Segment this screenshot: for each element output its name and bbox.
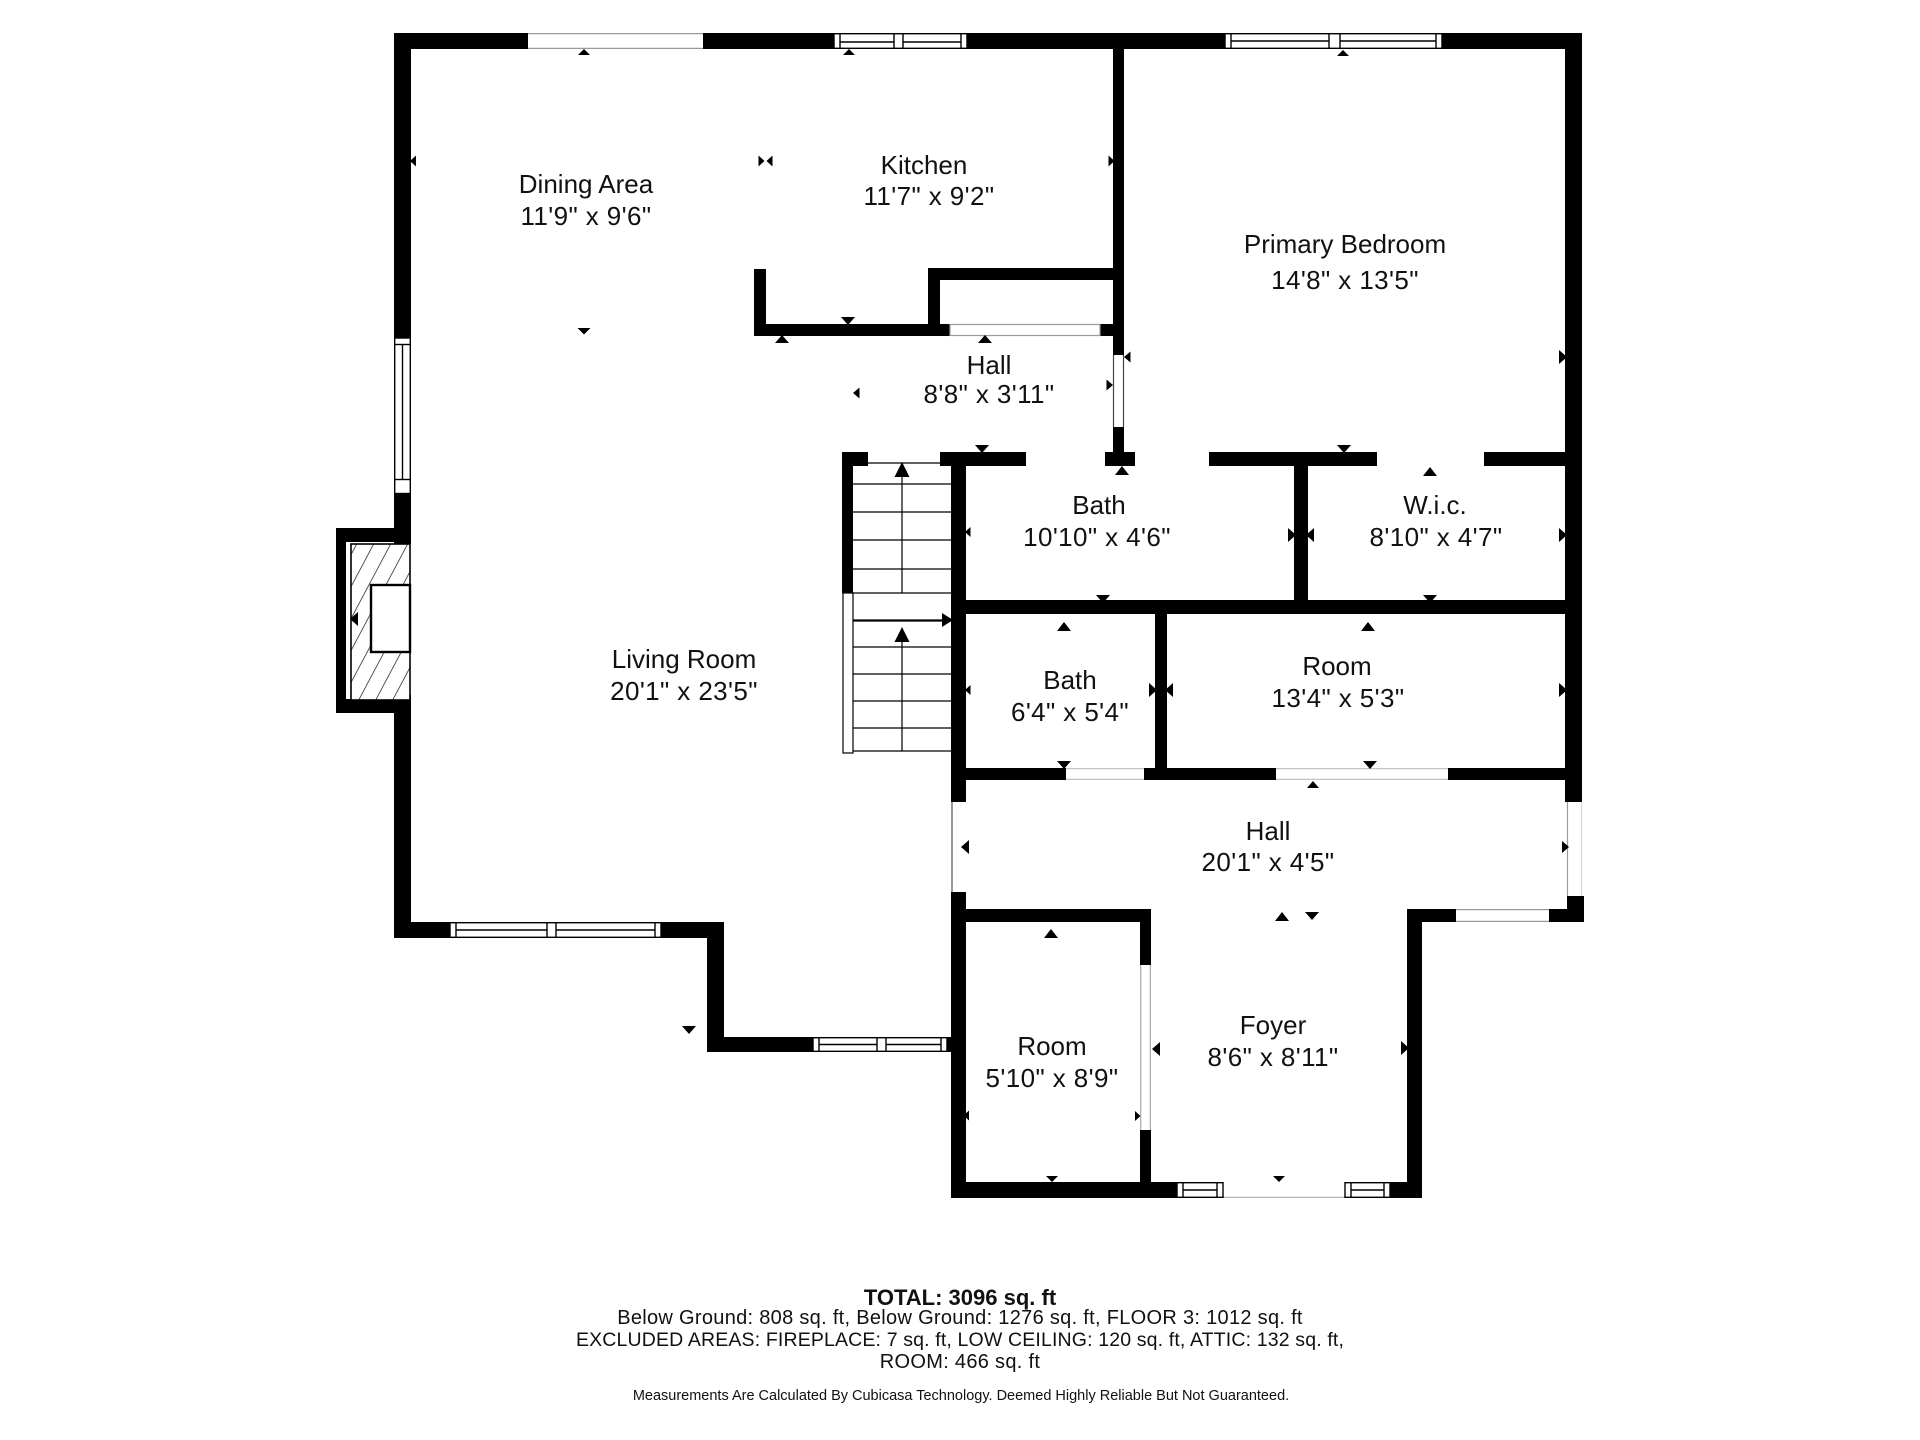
svg-text:Living Room: Living Room bbox=[612, 644, 757, 674]
svg-text:Dining Area: Dining Area bbox=[519, 169, 654, 199]
svg-text:Bath: Bath bbox=[1043, 665, 1097, 695]
svg-text:Kitchen: Kitchen bbox=[881, 150, 968, 180]
svg-text:Bath: Bath bbox=[1072, 490, 1126, 520]
svg-text:20'1" x 23'5": 20'1" x 23'5" bbox=[610, 676, 758, 706]
svg-text:11'9" x 9'6": 11'9" x 9'6" bbox=[520, 201, 651, 231]
svg-text:Hall: Hall bbox=[1246, 816, 1291, 846]
svg-text:Below Ground: 808 sq. ft, Belo: Below Ground: 808 sq. ft, Below Ground: … bbox=[617, 1307, 1303, 1329]
svg-text:5'10" x 8'9": 5'10" x 8'9" bbox=[986, 1063, 1119, 1093]
svg-text:14'8" x 13'5": 14'8" x 13'5" bbox=[1271, 265, 1419, 295]
svg-text:Measurements Are Calculated By: Measurements Are Calculated By Cubicasa … bbox=[633, 1388, 1289, 1404]
svg-text:Hall: Hall bbox=[967, 350, 1012, 380]
svg-text:8'10" x 4'7": 8'10" x 4'7" bbox=[1370, 522, 1503, 552]
svg-text:EXCLUDED AREAS: FIREPLACE: 7 s: EXCLUDED AREAS: FIREPLACE: 7 sq. ft, LOW… bbox=[576, 1329, 1344, 1351]
svg-text:8'8" x 3'11": 8'8" x 3'11" bbox=[923, 379, 1054, 409]
svg-text:Room: Room bbox=[1017, 1031, 1086, 1061]
svg-text:Foyer: Foyer bbox=[1240, 1010, 1307, 1040]
svg-text:6'4" x 5'4": 6'4" x 5'4" bbox=[1011, 697, 1129, 727]
svg-text:20'1" x 4'5": 20'1" x 4'5" bbox=[1202, 847, 1335, 877]
svg-text:Room: Room bbox=[1302, 651, 1371, 681]
svg-text:Primary Bedroom: Primary Bedroom bbox=[1244, 229, 1446, 259]
svg-text:8'6" x 8'11": 8'6" x 8'11" bbox=[1207, 1042, 1338, 1072]
svg-text:W.i.c.: W.i.c. bbox=[1403, 490, 1467, 520]
svg-text:10'10" x 4'6": 10'10" x 4'6" bbox=[1023, 522, 1171, 552]
svg-text:ROOM: 466 sq. ft: ROOM: 466 sq. ft bbox=[880, 1351, 1041, 1373]
svg-text:11'7" x 9'2": 11'7" x 9'2" bbox=[863, 181, 994, 211]
svg-text:13'4" x 5'3": 13'4" x 5'3" bbox=[1272, 683, 1405, 713]
